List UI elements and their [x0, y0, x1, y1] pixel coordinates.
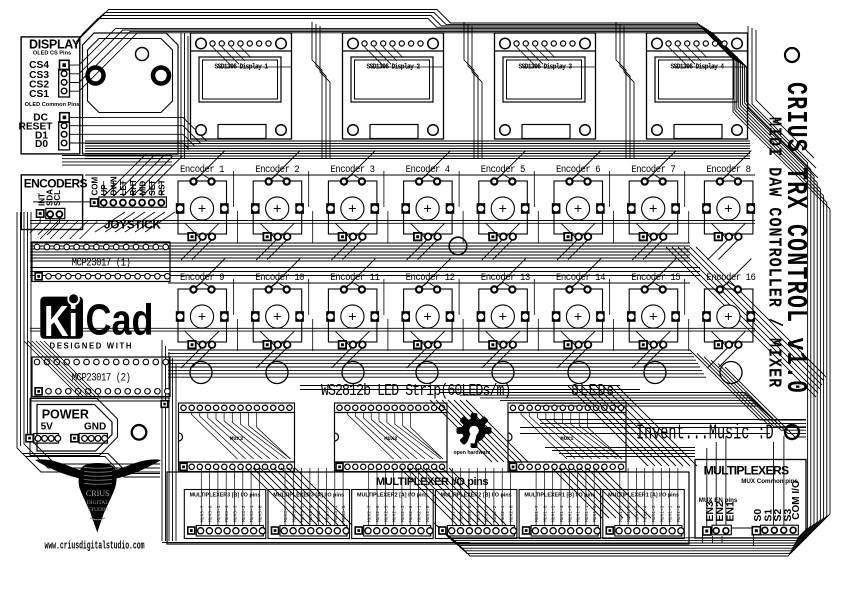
svg-text:D0: D0	[35, 139, 48, 150]
svg-text:Encoder 11: Encoder 11	[330, 272, 380, 284]
svg-text:MUX1-3: MUX1-3	[567, 505, 573, 522]
svg-text:MUX3-1: MUX3-1	[333, 505, 339, 522]
svg-text:MIDI DAW CONTROLLER / MIXER: MIDI DAW CONTROLLER / MIXER	[763, 117, 784, 388]
svg-text:SSD1306 Display 2: SSD1306 Display 2	[367, 63, 420, 72]
svg-text:MUX1-2: MUX1-2	[659, 505, 665, 522]
svg-text:MUX2-1: MUX2-1	[500, 505, 506, 522]
svg-text:MUX1-5: MUX1-5	[551, 505, 557, 522]
svg-text:MUX3-6: MUX3-6	[208, 505, 214, 522]
svg-text:MULTIPLEXER2 [B] I/O pins: MULTIPLEXER2 [B] I/O pins	[441, 493, 512, 499]
svg-text:MUX2-6: MUX2-6	[459, 505, 465, 522]
svg-text:DISPLAY: DISPLAY	[29, 37, 81, 51]
svg-text:MUX2-3: MUX2-3	[400, 505, 406, 522]
svg-text:RHT: RHT	[129, 179, 138, 196]
svg-text:Encoder 10: Encoder 10	[255, 272, 305, 284]
svg-text:MUX3-5: MUX3-5	[216, 505, 222, 522]
svg-text:SSD1306 Display 3: SSD1306 Display 3	[519, 63, 572, 72]
svg-text:UP: UP	[100, 184, 109, 196]
svg-text:MUX3-5: MUX3-5	[300, 505, 306, 522]
svg-text:MUX2-1: MUX2-1	[417, 505, 423, 522]
svg-text:MULTIPLEXER1 [A] I/O pins: MULTIPLEXER1 [A] I/O pins	[608, 493, 679, 499]
svg-text:MUX3-2: MUX3-2	[325, 505, 331, 522]
svg-text:DIGITAL: DIGITAL	[87, 500, 109, 506]
svg-text:MUX3-0: MUX3-0	[341, 505, 347, 522]
svg-text:MUX1-1: MUX1-1	[584, 505, 590, 522]
svg-text:SSD1306 Display 4: SSD1306 Display 4	[671, 63, 724, 72]
svg-text:GND: GND	[84, 421, 106, 432]
svg-text:MCP23017 (1): MCP23017 (1)	[72, 257, 131, 269]
svg-text:MULTIPLEXER2 [A] I/O pins: MULTIPLEXER2 [A] I/O pins	[357, 493, 428, 499]
svg-text:Encoder 15: Encoder 15	[631, 272, 681, 284]
svg-text:MUX3-2: MUX3-2	[241, 505, 247, 522]
svg-text:MUX3-6: MUX3-6	[291, 505, 297, 522]
svg-text:MUX1-6: MUX1-6	[542, 505, 548, 522]
svg-text:MUX2-2: MUX2-2	[492, 505, 498, 522]
svg-text:POWER: POWER	[42, 407, 89, 421]
svg-text:MUX3-4: MUX3-4	[308, 505, 314, 522]
svg-text:DESIGNED WITH: DESIGNED WITH	[50, 341, 134, 350]
svg-text:EN1: EN1	[724, 501, 736, 522]
svg-text:MUX Common pins: MUX Common pins	[741, 478, 798, 485]
svg-text:RST: RST	[158, 179, 167, 195]
svg-text:Encoder 16: Encoder 16	[706, 272, 756, 284]
svg-text:MUX3-7: MUX3-7	[283, 505, 289, 522]
svg-text:MUX1-4: MUX1-4	[643, 505, 649, 522]
svg-text:MUX2-0: MUX2-0	[425, 505, 431, 522]
svg-text:SSD1306 Display 1: SSD1306 Display 1	[215, 63, 268, 72]
svg-text:5V: 5V	[41, 421, 54, 432]
svg-text:MUX1-2: MUX1-2	[576, 505, 582, 522]
svg-text:CS1: CS1	[29, 89, 49, 100]
svg-text:MUX2-5: MUX2-5	[467, 505, 473, 522]
svg-text:MUX3-7: MUX3-7	[199, 505, 205, 522]
svg-text:COM: COM	[90, 177, 99, 196]
svg-text:MUX3-1: MUX3-1	[249, 505, 255, 522]
svg-text:MUX1-4: MUX1-4	[559, 505, 565, 522]
svg-text:MULTIPLEXER I/O pins: MULTIPLEXER I/O pins	[376, 476, 489, 488]
svg-text:MUX2-5: MUX2-5	[383, 505, 389, 522]
svg-text:MUX1-0: MUX1-0	[676, 505, 682, 522]
svg-text:CRIUS: CRIUS	[86, 489, 110, 498]
svg-text:MUX1-3: MUX1-3	[651, 505, 657, 522]
svg-text:OLED CS Pins: OLED CS Pins	[33, 50, 71, 56]
svg-text:MUX2-3: MUX2-3	[484, 505, 490, 522]
svg-text:MUX2-2: MUX2-2	[408, 505, 414, 522]
svg-text:WS2812b LED Strip(60LEDs/m): WS2812b LED Strip(60LEDs/m)	[321, 383, 511, 401]
svg-text:MUX1-7: MUX1-7	[534, 505, 540, 522]
svg-text:MULTIPLEXER3 [A] I/O pins: MULTIPLEXER3 [A] I/O pins	[273, 493, 344, 499]
svg-text:MUX2-7: MUX2-7	[367, 505, 373, 522]
svg-text:ENCODERS: ENCODERS	[24, 176, 88, 190]
svg-text:MUX3: MUX3	[230, 435, 244, 442]
svg-text:open hardware: open hardware	[454, 450, 491, 456]
svg-text:MUX2-4: MUX2-4	[392, 505, 398, 522]
svg-text:Encoder 14: Encoder 14	[556, 272, 606, 284]
svg-text:MUX2-4: MUX2-4	[475, 505, 481, 522]
svg-text:SCL: SCL	[53, 190, 62, 206]
svg-text:MUX2-7: MUX2-7	[450, 505, 456, 522]
svg-text:OLED Common Pins: OLED Common Pins	[25, 102, 80, 108]
svg-text:Encoder 13: Encoder 13	[481, 272, 531, 284]
svg-text:MULTIPLEXER1 [B] I/O pins: MULTIPLEXER1 [B] I/O pins	[524, 493, 595, 499]
svg-text:JOYSTICK: JOYSTICK	[104, 217, 161, 231]
svg-text:Encoder 12: Encoder 12	[406, 272, 455, 284]
svg-text:MUX3-0: MUX3-0	[257, 505, 263, 522]
svg-text:Cad: Cad	[86, 296, 154, 345]
svg-text:STUDIO: STUDIO	[88, 507, 108, 513]
svg-text:MUX3-3: MUX3-3	[233, 505, 239, 522]
svg-text:MUX1-1: MUX1-1	[668, 505, 674, 522]
svg-text:MUX1-6: MUX1-6	[626, 505, 632, 522]
svg-text:MUX1-0: MUX1-0	[592, 505, 598, 522]
svg-text:MULTIPLEXER3 [B] I/O pins: MULTIPLEXER3 [B] I/O pins	[190, 493, 261, 499]
svg-text:MUX2-0: MUX2-0	[509, 505, 515, 522]
svg-text:MUX3-4: MUX3-4	[224, 505, 230, 522]
svg-text:www.criusdigitalstudio.com: www.criusdigitalstudio.com	[45, 539, 145, 552]
svg-text:MUX2-6: MUX2-6	[375, 505, 381, 522]
svg-text:MUX1-5: MUX1-5	[634, 505, 640, 522]
svg-text:MUX3-3: MUX3-3	[316, 505, 322, 522]
svg-text:COM I/O: COM I/O	[791, 480, 802, 520]
svg-text:MUX1-7: MUX1-7	[618, 505, 624, 522]
